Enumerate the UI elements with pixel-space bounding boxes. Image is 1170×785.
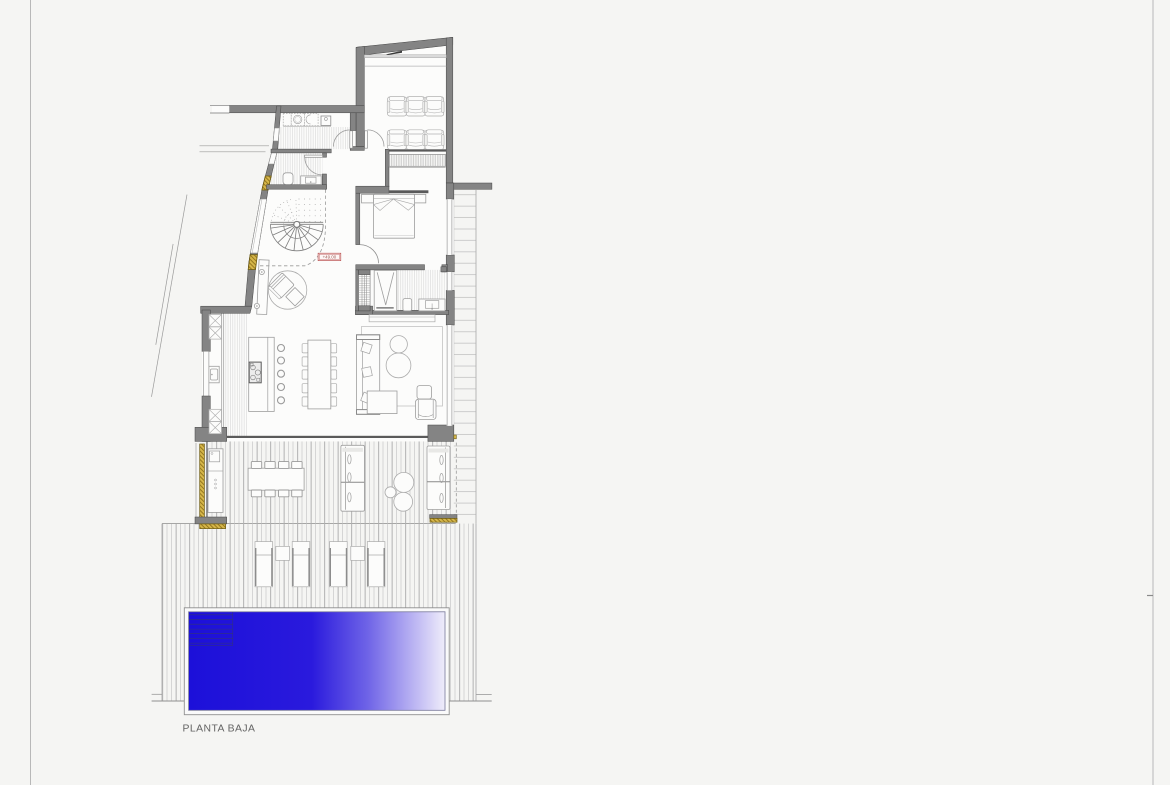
svg-text:PLANTA BAJA: PLANTA BAJA: [183, 723, 256, 734]
svg-text:+49.00: +49.00: [323, 255, 337, 260]
